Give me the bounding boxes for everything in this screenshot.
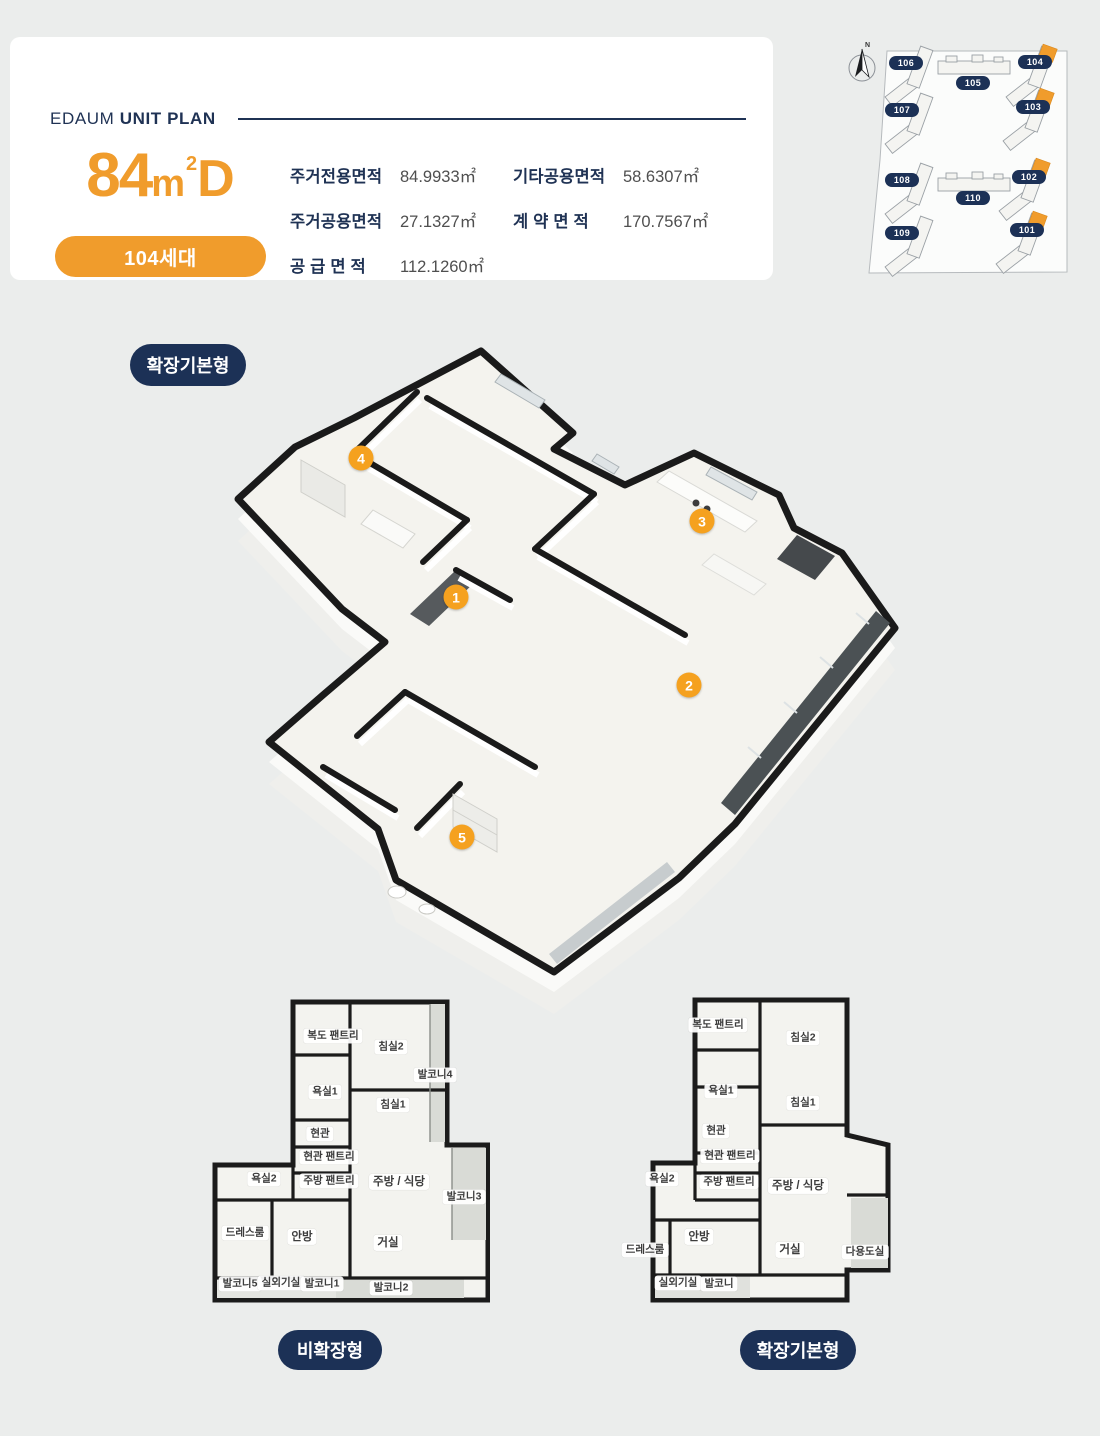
room-label: 거실 (373, 1235, 402, 1251)
room-label: 발코니2 (370, 1280, 413, 1295)
area-label: 공 급 면 적 (290, 253, 400, 277)
title-rule (238, 118, 746, 120)
room-marker: 2 (677, 673, 702, 698)
building-pill: 103 (1016, 100, 1050, 114)
room-label: 발코니4 (414, 1067, 457, 1082)
room-label: 현관 팬트리 (299, 1149, 358, 1164)
room-label: 주방 팬트리 (699, 1174, 758, 1189)
room-label: 드레스룸 (622, 1242, 669, 1257)
room-label: 주방 / 식당 (768, 1178, 828, 1194)
room-label: 발코니 (701, 1276, 738, 1291)
room-label: 욕실2 (645, 1171, 678, 1186)
area-label: 주거공용면적 (290, 208, 400, 232)
households-badge: 104세대 (55, 236, 266, 277)
room-marker: 1 (444, 585, 469, 610)
room-marker: 5 (450, 825, 475, 850)
unit-sqm: m (151, 163, 185, 205)
isometric-floor-plan: 1 2 3 4 5 (205, 332, 905, 1032)
site-map-drawing: N (835, 30, 1095, 280)
area-value: 112.1260㎡ (400, 253, 484, 277)
area-label: 주거전용면적 (290, 163, 400, 187)
building-pill: 106 (889, 56, 923, 70)
room-label: 발코니1 (301, 1276, 344, 1291)
compass-icon: N (849, 42, 875, 81)
unit-plan-page: EDAUM UNIT PLAN 84m2D 104세대 주거전용면적 84.99… (0, 0, 1100, 1436)
room-label: 복도 팬트리 (688, 1017, 747, 1032)
area-label: 계 약 면 적 (513, 208, 623, 232)
brand-text: EDAUM (50, 109, 114, 128)
room-label: 현관 (306, 1126, 333, 1141)
room-label: 침실1 (786, 1095, 819, 1110)
area-value: 27.1327㎡ (400, 208, 476, 232)
room-label: 현관 (702, 1123, 729, 1138)
room-label: 드레스룸 (222, 1225, 269, 1240)
site-map: N (835, 30, 1095, 280)
floor-and-outer-walls (238, 351, 895, 972)
room-label: 현관 팬트리 (700, 1148, 759, 1163)
building-pill: 102 (1012, 170, 1046, 184)
room-marker: 3 (690, 509, 715, 534)
room-label: 주방 / 식당 (369, 1174, 429, 1190)
page-title: EDAUM UNIT PLAN (50, 109, 216, 129)
floor-plan-extended: 복도 팬트리 침실2 욕실1 침실1 현관 현관 팬트리 욕실2 주방 팬트리 … (615, 995, 905, 1315)
room-label: 침실2 (374, 1039, 407, 1054)
room-label: 욕실1 (308, 1084, 341, 1099)
unit-type: D (197, 150, 235, 208)
unit-name: 84m2D (55, 145, 266, 207)
building-pill: 107 (885, 103, 919, 117)
building-pill: 110 (956, 191, 990, 205)
area-value: 170.7567㎡ (623, 208, 708, 232)
area-row: 주거전용면적 84.9933㎡ (290, 163, 476, 187)
area-row: 주거공용면적 27.1327㎡ (290, 208, 476, 232)
room-label: 발코니5 (219, 1276, 262, 1291)
isometric-drawing (205, 332, 905, 1032)
room-marker: 4 (349, 446, 374, 471)
area-row: 계 약 면 적 170.7567㎡ (513, 208, 708, 232)
unit-sqm-sup: 2 (186, 153, 197, 175)
building-pill: 101 (1010, 223, 1044, 237)
building-pill: 109 (885, 226, 919, 240)
title-text: UNIT PLAN (120, 109, 216, 128)
room-label: 욕실2 (247, 1171, 280, 1186)
unit-size: 84 (86, 141, 151, 210)
header-card: EDAUM UNIT PLAN 84m2D 104세대 주거전용면적 84.99… (10, 37, 773, 280)
floor-plan-non-extended: 복도 팬트리 침실2 발코니4 욕실1 침실1 현관 현관 팬트리 욕실2 주방… (200, 995, 490, 1315)
room-label: 주방 팬트리 (299, 1173, 358, 1188)
area-label: 기타공용면적 (513, 163, 623, 187)
room-label: 실외기실 (258, 1275, 305, 1290)
area-row: 기타공용면적 58.6307㎡ (513, 163, 699, 187)
room-label: 안방 (684, 1229, 713, 1245)
building-pill: 108 (885, 173, 919, 187)
compass-north-label: N (865, 42, 870, 49)
room-label: 발코니3 (443, 1189, 486, 1204)
room-label: 실외기실 (655, 1275, 702, 1290)
plan-left-type-badge: 비확장형 (278, 1330, 382, 1370)
room-label: 욕실1 (704, 1083, 737, 1098)
room-label: 거실 (775, 1242, 804, 1258)
building-pill: 105 (956, 76, 990, 90)
room-label: 안방 (287, 1229, 316, 1245)
room-label: 다용도실 (842, 1244, 889, 1259)
area-row: 공 급 면 적 112.1260㎡ (290, 253, 484, 277)
area-value: 58.6307㎡ (623, 163, 699, 187)
plan-right-type-badge: 확장기본형 (740, 1330, 856, 1370)
building-pill: 104 (1018, 55, 1052, 69)
floor-plan-drawing (615, 995, 905, 1315)
area-value: 84.9933㎡ (400, 163, 476, 187)
room-label: 침실2 (786, 1030, 819, 1045)
room-label: 침실1 (376, 1097, 409, 1112)
room-label: 복도 팬트리 (303, 1028, 362, 1043)
